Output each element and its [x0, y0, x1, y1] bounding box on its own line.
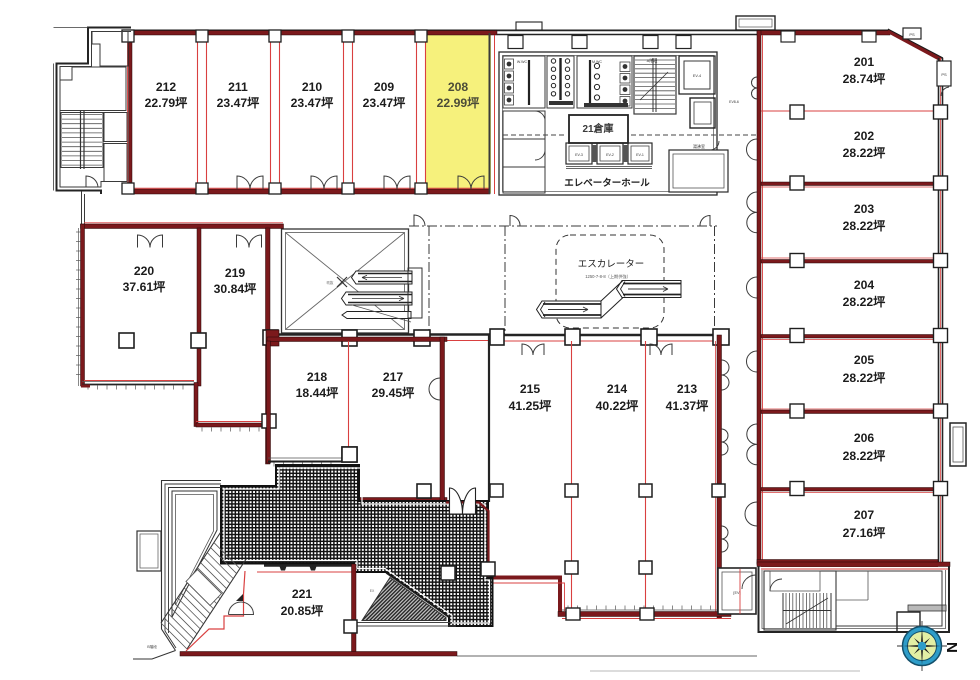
svg-text:23.47坪: 23.47坪	[217, 96, 260, 110]
svg-text:18.44坪: 18.44坪	[296, 386, 339, 400]
svg-text:206: 206	[854, 431, 875, 445]
svg-text:EV-3: EV-3	[575, 153, 583, 157]
svg-text:28.22坪: 28.22坪	[843, 146, 886, 160]
svg-text:30.84坪: 30.84坪	[214, 282, 257, 296]
svg-text:28.22坪: 28.22坪	[843, 371, 886, 385]
svg-text:41.37坪: 41.37坪	[666, 399, 709, 413]
svg-text:20.85坪: 20.85坪	[281, 604, 324, 618]
svg-text:212: 212	[156, 80, 177, 94]
svg-text:27.16坪: 27.16坪	[843, 526, 886, 540]
svg-text:205: 205	[854, 353, 875, 367]
svg-text:21倉庫: 21倉庫	[582, 122, 613, 135]
svg-text:吹抜: 吹抜	[327, 280, 334, 285]
svg-text:207: 207	[854, 508, 875, 522]
svg-text:28.22坪: 28.22坪	[843, 219, 886, 233]
svg-text:209: 209	[374, 80, 395, 94]
svg-text:219: 219	[225, 266, 246, 280]
svg-text:23.47坪: 23.47坪	[291, 96, 334, 110]
svg-text:エレベーターホール: エレベーターホール	[564, 177, 650, 189]
svg-text:A階段: A階段	[647, 57, 658, 63]
svg-text:B階段: B階段	[147, 644, 157, 649]
svg-text:23.47坪: 23.47坪	[363, 96, 406, 110]
svg-text:208: 208	[448, 80, 469, 94]
svg-text:湯沸室: 湯沸室	[693, 143, 705, 149]
svg-text:220: 220	[134, 264, 155, 278]
svg-text:204: 204	[854, 278, 875, 292]
svg-text:218: 218	[307, 370, 328, 384]
svg-text:203: 203	[854, 202, 875, 216]
svg-text:28.74坪: 28.74坪	[843, 72, 886, 86]
svg-text:EV8-6: EV8-6	[729, 100, 739, 104]
svg-text:22.79坪: 22.79坪	[145, 96, 188, 110]
svg-text:211: 211	[228, 80, 248, 94]
svg-text:210: 210	[302, 80, 323, 94]
svg-text:1250-7-8-8（上期供強）: 1250-7-8-8（上期供強）	[585, 273, 631, 280]
svg-text:EV-4: EV-4	[693, 74, 701, 78]
svg-text:EV-2: EV-2	[606, 153, 614, 157]
svg-text:N: N	[943, 642, 960, 653]
svg-text:[EV]: [EV]	[733, 591, 740, 595]
svg-text:37.61坪: 37.61坪	[123, 280, 166, 294]
svg-text:28.22坪: 28.22坪	[843, 449, 886, 463]
svg-text:EV-1: EV-1	[636, 153, 644, 157]
svg-text:213: 213	[677, 382, 698, 396]
svg-text:PS: PS	[909, 32, 915, 37]
svg-text:221: 221	[292, 587, 313, 601]
svg-text:29.45坪: 29.45坪	[372, 386, 415, 400]
svg-text:エスカレーター: エスカレーター	[578, 259, 645, 270]
svg-text:217: 217	[383, 370, 404, 384]
svg-text:28.22坪: 28.22坪	[843, 295, 886, 309]
svg-text:EX: EX	[370, 589, 375, 593]
svg-text:201: 201	[854, 55, 875, 69]
svg-text:40.22坪: 40.22坪	[596, 399, 639, 413]
svg-text:W.WC: W.WC	[517, 60, 528, 64]
svg-text:214: 214	[607, 382, 628, 396]
svg-text:PS: PS	[941, 72, 947, 77]
svg-text:202: 202	[854, 129, 875, 143]
svg-text:22.99坪: 22.99坪	[437, 96, 480, 110]
svg-text:41.25坪: 41.25坪	[509, 399, 552, 413]
svg-text:215: 215	[520, 382, 541, 396]
